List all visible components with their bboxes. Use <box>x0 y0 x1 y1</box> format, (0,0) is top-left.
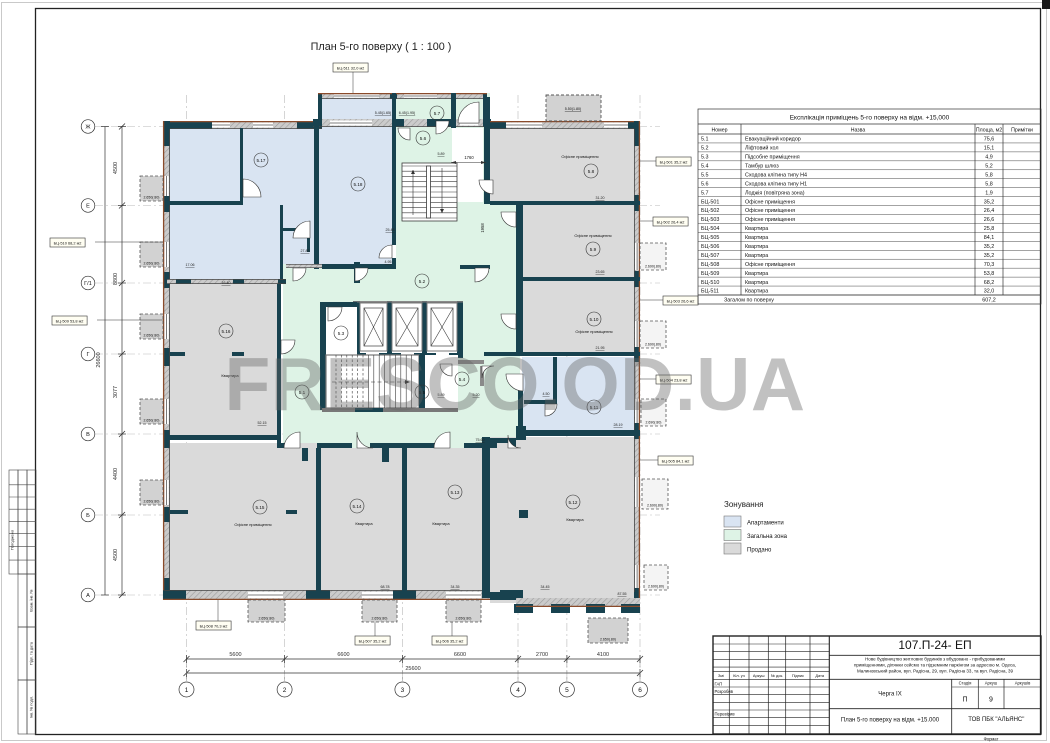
svg-text:Загалом по поверху: Загалом по поверху <box>724 298 774 304</box>
svg-text:Погоджено: Погоджено <box>10 529 15 550</box>
svg-text:5,2: 5,2 <box>985 163 993 169</box>
svg-text:Г/1: Г/1 <box>84 281 92 287</box>
svg-text:2.650(.80): 2.650(.80) <box>372 617 388 621</box>
svg-text:35,2: 35,2 <box>984 199 995 205</box>
svg-text:32,0: 32,0 <box>984 289 995 295</box>
svg-text:приміщеннями, ділянки сейсмо т: приміщеннями, ділянки сейсмо та підземни… <box>854 662 1016 668</box>
svg-text:Квартира: Квартира <box>745 235 768 241</box>
svg-text:2.650(.80): 2.650(.80) <box>144 419 160 423</box>
svg-text:4.95: 4.95 <box>385 260 392 264</box>
svg-text:4,9: 4,9 <box>985 155 993 161</box>
svg-text:5.7: 5.7 <box>434 111 441 116</box>
svg-text:План 5-го поверху на відм. +15: План 5-го поверху на відм. +15.000 <box>841 718 940 724</box>
svg-text:4: 4 <box>516 687 520 694</box>
svg-text:Аркуш: Аркуш <box>985 681 998 686</box>
svg-text:5.7: 5.7 <box>701 190 709 196</box>
svg-text:4500: 4500 <box>113 162 119 174</box>
svg-text:3077: 3077 <box>113 386 119 398</box>
svg-text:№ док.: № док. <box>771 673 783 678</box>
svg-text:5.3: 5.3 <box>338 331 345 336</box>
svg-text:Офісне приміщення: Офісне приміщення <box>575 329 612 334</box>
svg-text:5.45(1.65): 5.45(1.65) <box>375 111 391 115</box>
svg-text:8800: 8800 <box>113 273 119 285</box>
svg-text:2.650(.80): 2.650(.80) <box>144 196 160 200</box>
svg-text:68,2: 68,2 <box>984 280 995 286</box>
svg-text:15,1: 15,1 <box>984 146 995 152</box>
svg-text:Нове будівництво житлових буди: Нове будівництво житлових будинків з вбу… <box>865 657 1005 662</box>
svg-text:БЦ-507: БЦ-507 <box>701 253 719 259</box>
svg-text:607,2: 607,2 <box>982 298 996 304</box>
svg-text:Сходова клітина типу Н4: Сходова клітина типу Н4 <box>745 172 807 178</box>
svg-text:2.650(.80): 2.650(.80) <box>456 617 472 621</box>
svg-text:Підп. та дата: Підп. та дата <box>30 641 34 665</box>
svg-text:34.35: 34.35 <box>451 585 460 589</box>
svg-text:4400: 4400 <box>113 468 119 480</box>
svg-text:2.690(.80): 2.690(.80) <box>647 504 663 508</box>
svg-text:2.650(.80): 2.650(.80) <box>144 262 160 266</box>
svg-text:5.13: 5.13 <box>451 490 460 495</box>
svg-text:БЦ-510: БЦ-510 <box>701 280 719 286</box>
svg-text:Офісне приміщення: Офісне приміщення <box>745 217 795 223</box>
svg-text:5.16: 5.16 <box>222 329 231 334</box>
svg-text:5,8: 5,8 <box>985 181 993 187</box>
svg-text:ТОВ ПБК "АЛЬЯНС": ТОВ ПБК "АЛЬЯНС" <box>968 717 1024 723</box>
svg-text:Стадія: Стадія <box>959 681 972 686</box>
svg-text:6600: 6600 <box>454 652 466 658</box>
svg-text:Дата: Дата <box>815 673 824 678</box>
svg-text:70,3: 70,3 <box>984 262 995 268</box>
svg-text:75.60: 75.60 <box>476 438 485 442</box>
svg-text:5.3: 5.3 <box>701 155 709 161</box>
svg-text:БЦ-505 84,1 м2: БЦ-505 84,1 м2 <box>662 458 690 463</box>
svg-text:6: 6 <box>638 687 642 694</box>
svg-text:Евакуаційний коридор: Евакуаційний коридор <box>745 136 801 143</box>
svg-text:6600: 6600 <box>337 652 349 658</box>
svg-text:Офісне приміщення: Офісне приміщення <box>234 522 271 527</box>
svg-text:БЦ-501 35,2 м2: БЦ-501 35,2 м2 <box>660 159 688 164</box>
svg-text:5.12: 5.12 <box>569 500 578 505</box>
svg-text:2.690(.80): 2.690(.80) <box>648 585 664 589</box>
svg-text:1760: 1760 <box>464 155 474 160</box>
svg-text:5.4: 5.4 <box>701 163 709 169</box>
svg-text:2: 2 <box>283 687 287 694</box>
svg-text:75,6: 75,6 <box>984 137 995 143</box>
svg-text:17.06: 17.06 <box>186 263 195 267</box>
svg-text:Офісне приміщення: Офісне приміщення <box>745 208 795 214</box>
svg-text:Офісне приміщення: Офісне приміщення <box>574 233 611 238</box>
svg-text:Е: Е <box>86 204 90 210</box>
svg-text:5.18: 5.18 <box>354 182 363 187</box>
svg-text:Розробив: Розробив <box>715 689 734 694</box>
svg-text:Продано: Продано <box>747 548 772 554</box>
svg-text:БЦ-510 68,2 м2: БЦ-510 68,2 м2 <box>54 240 82 245</box>
svg-text:БЦ-502: БЦ-502 <box>701 208 719 214</box>
svg-text:БЦ-504: БЦ-504 <box>701 226 719 232</box>
svg-text:Черга ІХ: Черга ІХ <box>878 692 901 698</box>
svg-text:5.6: 5.6 <box>701 181 709 187</box>
svg-text:5: 5 <box>565 687 569 694</box>
svg-text:А: А <box>86 593 90 599</box>
svg-text:БЦ-508: БЦ-508 <box>701 262 719 268</box>
svg-text:БЦ-511 32,0 м2: БЦ-511 32,0 м2 <box>337 65 365 70</box>
svg-text:5.9: 5.9 <box>590 247 597 252</box>
svg-text:2.650(.80): 2.650(.80) <box>144 334 160 338</box>
svg-text:68.78: 68.78 <box>381 585 390 589</box>
svg-text:Квартира: Квартира <box>745 244 768 250</box>
svg-text:Аркушів: Аркушів <box>1015 681 1031 686</box>
svg-text:5.89: 5.89 <box>438 152 445 156</box>
svg-text:Перевірив: Перевірив <box>715 712 736 717</box>
svg-text:3: 3 <box>401 687 405 694</box>
svg-text:87.55: 87.55 <box>618 592 627 596</box>
svg-text:Підсобне приміщення: Підсобне приміщення <box>745 155 800 161</box>
svg-text:Квартира: Квартира <box>566 517 584 522</box>
svg-text:ГАП: ГАП <box>715 681 723 686</box>
svg-text:5.2: 5.2 <box>701 146 709 152</box>
svg-text:107.П-24- ЕП: 107.П-24- ЕП <box>898 638 971 652</box>
svg-text:БЦ-509: БЦ-509 <box>701 271 719 277</box>
svg-text:Квартира: Квартира <box>745 289 768 295</box>
svg-text:Квартира: Квартира <box>745 253 768 259</box>
svg-text:5.17: 5.17 <box>257 158 266 163</box>
svg-text:5.14: 5.14 <box>353 504 362 509</box>
svg-text:5.50(1.80): 5.50(1.80) <box>565 107 581 111</box>
svg-text:В: В <box>86 432 90 438</box>
svg-text:9: 9 <box>989 697 993 704</box>
svg-text:Квартира: Квартира <box>432 521 450 526</box>
svg-text:Загальна зона: Загальна зона <box>747 534 788 540</box>
svg-text:Аркуш: Аркуш <box>753 673 765 678</box>
svg-text:16.40: 16.40 <box>222 281 231 285</box>
svg-text:Номер: Номер <box>712 128 728 134</box>
svg-text:25600: 25600 <box>405 666 420 672</box>
svg-text:53,8: 53,8 <box>984 271 995 277</box>
svg-text:Примітки: Примітки <box>1011 128 1033 134</box>
svg-text:35,2: 35,2 <box>984 244 995 250</box>
svg-text:84,1: 84,1 <box>984 235 995 241</box>
svg-text:БЦ-507 35,2 м2: БЦ-507 35,2 м2 <box>359 638 387 643</box>
svg-text:Ліфтовий хол: Ліфтовий хол <box>745 145 779 152</box>
svg-text:Лоджія (повітряна зона): Лоджія (повітряна зона) <box>745 190 805 196</box>
svg-text:5.5: 5.5 <box>701 172 709 178</box>
svg-text:Б: Б <box>86 513 90 519</box>
svg-text:2.690(.80): 2.690(.80) <box>645 265 661 269</box>
svg-text:1: 1 <box>185 687 189 694</box>
svg-text:25,8: 25,8 <box>984 226 995 232</box>
svg-text:5.2: 5.2 <box>419 279 426 284</box>
svg-text:Площа, м2: Площа, м2 <box>976 128 1002 134</box>
svg-text:БЦ-509 53,8 м2: БЦ-509 53,8 м2 <box>56 318 84 323</box>
svg-text:План 5-го поверху ( 1 : 100 ): План 5-го поверху ( 1 : 100 ) <box>311 41 452 53</box>
svg-text:БЦ-508 70,3 м2: БЦ-508 70,3 м2 <box>200 623 228 628</box>
svg-text:5.10: 5.10 <box>590 317 599 322</box>
svg-text:Назва: Назва <box>851 128 866 134</box>
svg-text:Зонування: Зонування <box>724 500 763 509</box>
svg-text:27.85: 27.85 <box>301 249 310 253</box>
svg-text:Змі: Змі <box>718 673 724 678</box>
svg-text:1958: 1958 <box>480 223 485 233</box>
svg-text:БЦ-506: БЦ-506 <box>701 244 719 250</box>
svg-text:FRESCO.OD.UA: FRESCO.OD.UA <box>224 342 805 426</box>
svg-text:Офісне приміщення: Офісне приміщення <box>745 199 795 205</box>
svg-text:Тамбур шлюз: Тамбур шлюз <box>745 163 779 169</box>
svg-text:Малиновський район, вул. Радіс: Малиновський район, вул. Радісна, 29, ву… <box>857 668 1014 674</box>
svg-text:Формат: Формат <box>984 737 999 742</box>
svg-text:26600: 26600 <box>96 352 102 367</box>
svg-text:2.650(.80): 2.650(.80) <box>259 617 275 621</box>
svg-text:Квартира: Квартира <box>745 271 768 277</box>
svg-text:26,4: 26,4 <box>984 208 995 214</box>
svg-text:БЦ-506 35,2 м2: БЦ-506 35,2 м2 <box>436 638 464 643</box>
svg-text:35,2: 35,2 <box>984 253 995 259</box>
svg-text:Експлікація приміщень 5-го пов: Експлікація приміщень 5-го поверху на ві… <box>790 114 950 122</box>
svg-text:БЦ-505: БЦ-505 <box>701 235 719 241</box>
svg-text:БЦ-503: БЦ-503 <box>701 217 719 223</box>
svg-text:Офісне приміщення: Офісне приміщення <box>745 262 795 268</box>
svg-text:6.45(1.95): 6.45(1.95) <box>399 111 415 115</box>
svg-text:Г: Г <box>86 352 89 358</box>
svg-text:1,9: 1,9 <box>985 190 993 196</box>
svg-text:Підпис: Підпис <box>792 673 804 678</box>
svg-text:31.20: 31.20 <box>596 196 605 200</box>
svg-text:БЦ-511: БЦ-511 <box>701 289 719 295</box>
svg-text:П: П <box>962 697 967 704</box>
svg-text:Апартаменти: Апартаменти <box>747 521 784 527</box>
svg-text:5.15: 5.15 <box>256 505 265 510</box>
svg-text:БЦ-501: БЦ-501 <box>701 199 719 205</box>
svg-text:Сходова клітина типу Н1: Сходова клітина типу Н1 <box>745 181 807 187</box>
svg-text:5.6: 5.6 <box>420 136 427 141</box>
svg-text:5.8: 5.8 <box>588 169 595 174</box>
svg-text:Взам. інв. №: Взам. інв. № <box>30 589 34 611</box>
svg-text:Квартира: Квартира <box>745 226 768 232</box>
svg-text:Квартира: Квартира <box>355 521 373 526</box>
svg-text:5600: 5600 <box>229 652 241 658</box>
svg-text:34.45: 34.45 <box>541 585 550 589</box>
svg-text:4500: 4500 <box>113 549 119 561</box>
svg-text:2.650(.80): 2.650(.80) <box>600 638 616 642</box>
svg-text:4100: 4100 <box>597 652 609 658</box>
svg-text:БЦ-503 26,6 м2: БЦ-503 26,6 м2 <box>667 298 695 303</box>
svg-text:БЦ-502 26,4 м2: БЦ-502 26,4 м2 <box>657 219 685 224</box>
svg-text:5,8: 5,8 <box>985 172 993 178</box>
svg-text:5.1: 5.1 <box>701 137 709 143</box>
svg-text:Квартира: Квартира <box>745 280 768 286</box>
svg-text:Ж: Ж <box>85 125 91 131</box>
svg-text:25.45: 25.45 <box>386 228 395 232</box>
svg-text:26,6: 26,6 <box>984 217 995 223</box>
svg-text:2.650(.80): 2.650(.80) <box>144 500 160 504</box>
svg-text:2700: 2700 <box>536 652 548 658</box>
svg-text:Офісне приміщення: Офісне приміщення <box>561 154 598 159</box>
svg-text:23.65: 23.65 <box>596 270 605 274</box>
svg-text:Інв. № подл.: Інв. № подл. <box>30 696 34 718</box>
svg-text:Кіл. уч: Кіл. уч <box>733 673 745 678</box>
